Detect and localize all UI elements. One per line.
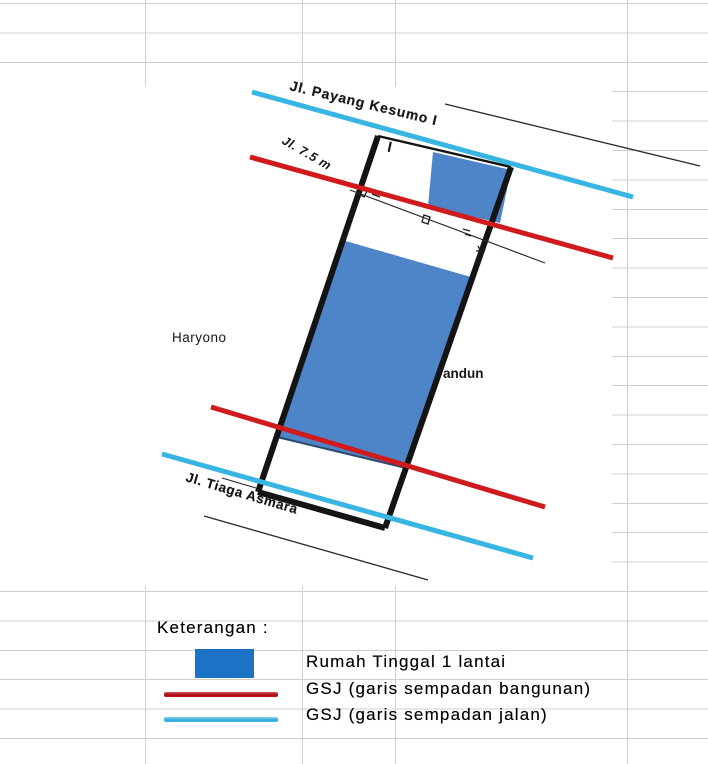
legend-label-gsb: GSJ (garis sempadan bangunan): [306, 679, 591, 699]
legend-title: Keterangan :: [157, 618, 269, 638]
spreadsheet-page: { "sheet": { "grid_color": "#cfcfcf" }, …: [0, 0, 708, 764]
legend-label-gsj: GSJ (garis sempadan jalan): [306, 705, 548, 725]
legend: Keterangan : Rumah Tinggal 1 lantai GSJ …: [0, 0, 708, 764]
legend-label-building: Rumah Tinggal 1 lantai: [306, 652, 506, 672]
legend-swatch-gsj-line: [164, 717, 278, 722]
legend-swatch-building: [195, 649, 254, 678]
legend-swatch-gsb-line: [164, 692, 278, 697]
